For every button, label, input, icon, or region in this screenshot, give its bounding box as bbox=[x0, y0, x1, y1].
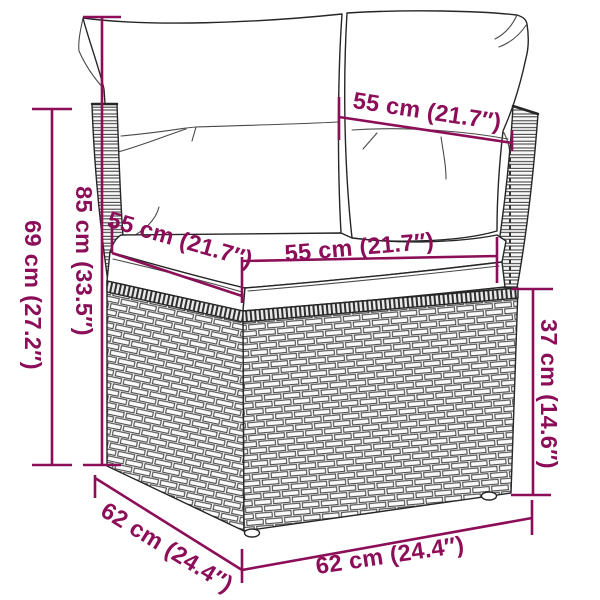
right-back-cushion bbox=[345, 11, 529, 241]
diagram-canvas: 85 cm (33.5″) 69 cm (27.2″) 55 cm (21.7″… bbox=[0, 0, 600, 600]
base-left-face bbox=[107, 281, 244, 531]
dimension-label-base-height: 37 cm (14.6″) bbox=[536, 319, 562, 469]
base-foot-right bbox=[482, 492, 497, 500]
corner-sofa-illustration bbox=[79, 11, 538, 537]
right-cushion-edge-crease bbox=[503, 131, 510, 160]
base-foot-front bbox=[245, 529, 260, 537]
product-dimension-diagram: 85 cm (33.5″) 69 cm (27.2″) 55 cm (21.7″… bbox=[0, 0, 600, 600]
dimension-label-total-height: 85 cm (33.5″) bbox=[71, 186, 97, 336]
right-back-cushion-body bbox=[345, 11, 529, 241]
rattan-base bbox=[107, 281, 518, 537]
dimension-label-base-width: 62 cm (24.4″) bbox=[314, 531, 466, 579]
dimension-label-frame-height: 69 cm (27.2″) bbox=[20, 220, 46, 370]
base-right-face bbox=[243, 288, 518, 531]
